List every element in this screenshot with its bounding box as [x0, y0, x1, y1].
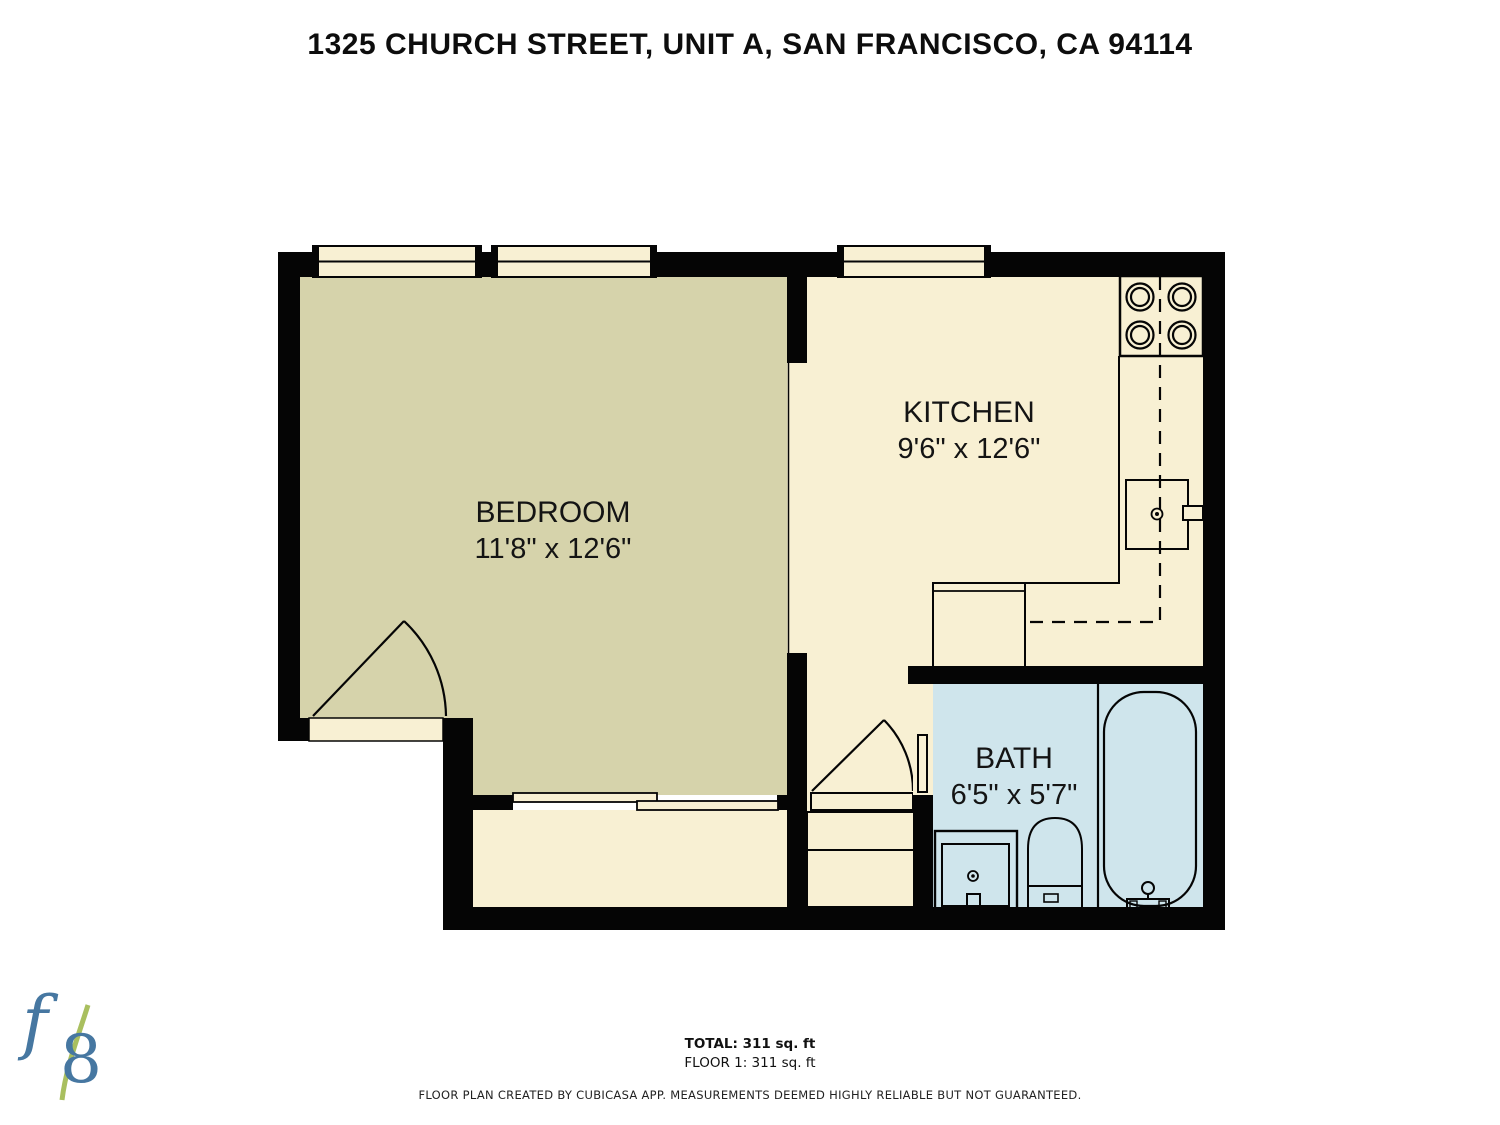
kitchen-label: KITCHEN 9'6" x 12'6" — [898, 395, 1041, 467]
f8-logo: f 8 — [16, 995, 126, 1110]
windows — [313, 246, 990, 277]
wall-bedroom-south-right — [777, 795, 807, 810]
area-summary: TOTAL: 311 sq. ft FLOOR 1: 311 sq. ft — [684, 1036, 815, 1071]
bath-dimensions: 6'5" x 5'7" — [951, 778, 1078, 813]
floorplan-drawing — [0, 0, 1500, 1125]
kitchen-dimensions: 9'6" x 12'6" — [898, 432, 1041, 467]
bedroom-dimensions: 11'8" x 12'6" — [475, 532, 632, 567]
wall-bottom — [443, 907, 1225, 930]
bedroom-name: BEDROOM — [475, 495, 632, 532]
logo-letter-8: 8 — [60, 1021, 102, 1098]
wall-divider-bottom — [787, 653, 807, 930]
window-bedroom-2 — [492, 246, 656, 277]
sliding-door — [513, 793, 778, 810]
threshold-floor — [787, 363, 807, 653]
wall-sw-door-left — [278, 718, 309, 741]
steps-floor — [807, 810, 915, 907]
disclaimer-text: FLOOR PLAN CREATED BY CUBICASA APP. MEAS… — [418, 1088, 1081, 1102]
stove-icon — [1120, 276, 1203, 356]
wall-divider-top — [787, 277, 807, 363]
bath-name: BATH — [951, 741, 1078, 778]
bedroom-label: BEDROOM 11'8" x 12'6" — [475, 495, 632, 567]
entry-floor — [473, 810, 787, 907]
kitchen-name: KITCHEN — [898, 395, 1041, 432]
floor1-area: FLOOR 1: 311 sq. ft — [684, 1055, 815, 1071]
logo-letter-f: f — [22, 981, 48, 1063]
bath-label: BATH 6'5" x 5'7" — [951, 741, 1078, 813]
window-kitchen — [838, 246, 990, 277]
page-title: 1325 CHURCH STREET, UNIT A, SAN FRANCISC… — [307, 28, 1192, 62]
wall-step — [443, 718, 473, 930]
floorplan-page: 1325 CHURCH STREET, UNIT A, SAN FRANCISC… — [0, 0, 1500, 1125]
bath-door — [913, 684, 933, 795]
wall-right — [1203, 252, 1225, 930]
total-area: TOTAL: 311 sq. ft — [684, 1036, 815, 1052]
wall-bedroom-south-left — [443, 795, 513, 810]
window-bedroom-1 — [313, 246, 481, 277]
wall-left — [278, 252, 300, 741]
wall-bath-top — [908, 666, 1225, 684]
